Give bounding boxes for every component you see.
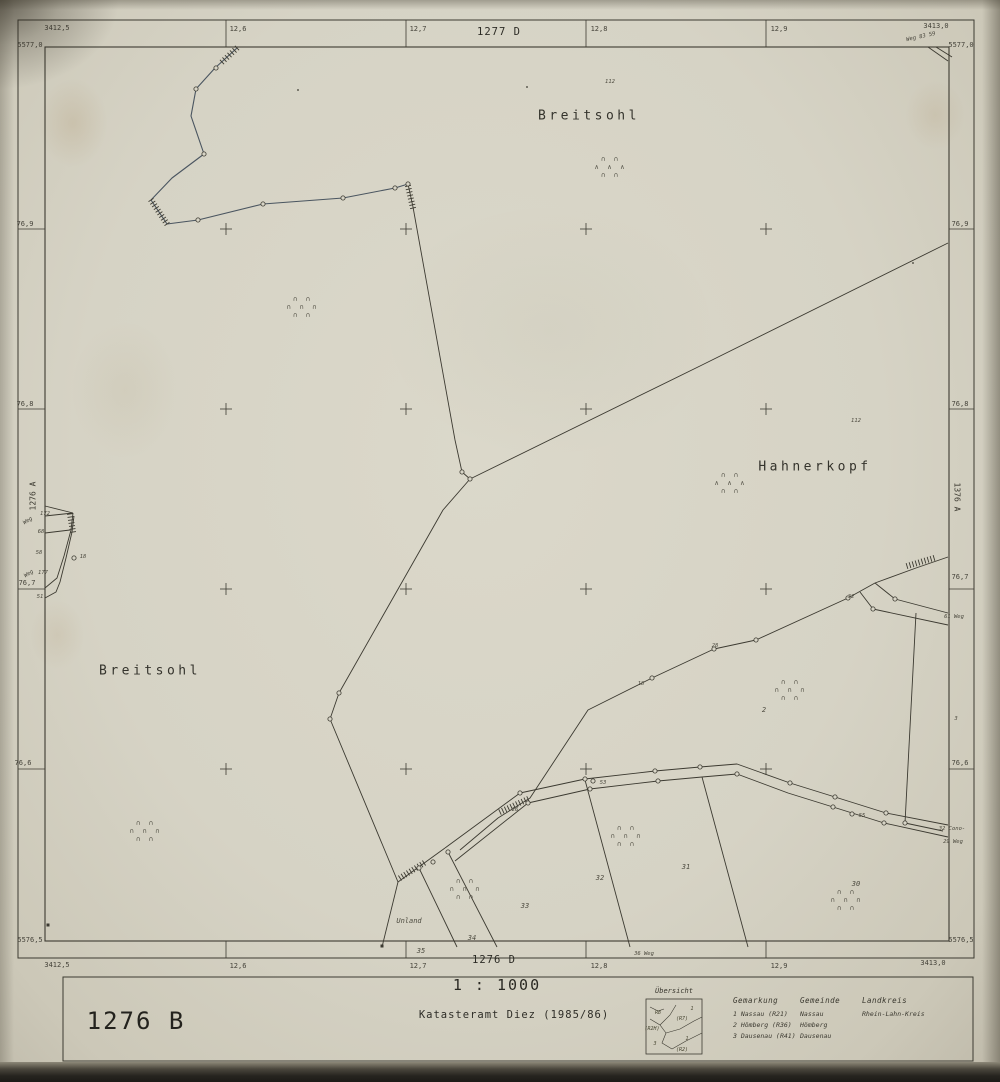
overview-label: (R2)	[676, 1047, 688, 1053]
embankment-hatch	[921, 559, 923, 565]
parcel-34: 34	[468, 934, 476, 942]
overview-label: R8	[655, 1010, 661, 1016]
parcel-boundary-line	[382, 882, 398, 947]
parcel-boundary-line	[460, 557, 948, 850]
parcel-68: 68	[38, 529, 45, 535]
grid-label-top-2: 12,6	[230, 25, 247, 33]
survey-point	[196, 218, 200, 222]
survey-point	[518, 791, 522, 795]
map-speck	[912, 262, 914, 264]
parcel-112-north: 112	[605, 79, 615, 85]
parcel-boundary-line	[470, 243, 948, 479]
legend-column-header: Gemeinde	[800, 996, 840, 1005]
survey-point	[591, 779, 595, 783]
survey-point	[653, 769, 657, 773]
survey-point	[882, 821, 886, 825]
embankment-hatch	[504, 807, 507, 812]
embankment-hatch	[507, 805, 510, 810]
tree-cluster-east: ∩ ∩∩ ∩ ∩∩ ∩	[774, 678, 807, 702]
embankment-hatch	[149, 198, 154, 201]
parcel-32: 32	[596, 874, 604, 882]
tree-cluster-sw: ∩ ∩∩ ∩ ∩∩ ∩	[129, 819, 162, 843]
survey-point	[656, 779, 660, 783]
survey-point	[884, 811, 888, 815]
survey-point	[261, 202, 265, 206]
embankment-hatch	[906, 563, 908, 569]
grid-label-top-6: 3413,0	[923, 22, 948, 30]
grid-label-bottom-3: 12,7	[410, 962, 427, 970]
overview-label: (R7)	[676, 1016, 688, 1022]
neighbor-sheet-bottom: 1276 D	[472, 954, 516, 966]
overview-title: Übersicht	[655, 987, 693, 995]
weg-36-label: 36 Weg	[634, 951, 654, 957]
label-32-cono: 32 Cono-	[939, 826, 966, 832]
legend-column-header: Gemarkung	[733, 996, 796, 1005]
survey-point	[903, 821, 907, 825]
parcel-boundary-line	[408, 184, 470, 479]
scanned-cadastral-map-sheet: 3412,512,612,712,812,93413,0Weg 83 59557…	[0, 0, 1000, 1082]
overview-label: (R2H)	[644, 1026, 659, 1032]
grid-label-left-1: 76,9	[17, 220, 34, 228]
grid-label-bottom-5: 12,9	[771, 962, 788, 970]
grid-label-right-2: 76,8	[952, 400, 969, 408]
survey-point	[468, 477, 472, 481]
embankment-hatch	[915, 560, 917, 566]
neighbor-sheet-left: 1276 A	[29, 482, 38, 511]
stream-boundary-line	[167, 184, 408, 224]
survey-point	[788, 781, 792, 785]
parcel-boundary-line	[905, 613, 943, 831]
embankment-hatch	[157, 212, 162, 215]
survey-point	[328, 717, 332, 721]
grid-label-corner-tr: 5577,0	[948, 41, 973, 49]
parcel-boundary-line	[330, 479, 470, 882]
parcel-boundary-line	[445, 764, 948, 848]
survey-point	[893, 597, 897, 601]
embankment-hatch	[154, 206, 159, 209]
survey-point	[754, 638, 758, 642]
tree-cluster-nw: ∩ ∩∩ ∩ ∩∩ ∩	[286, 295, 319, 319]
legend-col-gemarkung: Gemarkung1 Nassau (R21)2 Hömberg (R36)3 …	[733, 996, 796, 1042]
survey-point	[393, 186, 397, 190]
grid-label-right-4: 76,6	[952, 759, 969, 767]
legend-row: 1 Nassau (R21)	[733, 1009, 796, 1020]
grid-label-corner-bl: 5576,5	[17, 936, 42, 944]
survey-point	[698, 765, 702, 769]
embankment-hatch	[422, 860, 425, 865]
embankment-hatch	[927, 557, 929, 563]
map-canvas	[0, 0, 1000, 1082]
point-18: 18	[80, 554, 87, 560]
map-speck	[526, 86, 528, 88]
parcel-172: 172	[40, 511, 50, 517]
parcel-35: 35	[417, 947, 425, 955]
survey-point	[871, 607, 875, 611]
parcel-51: 51	[37, 594, 44, 600]
parcel-177: 177	[38, 570, 48, 576]
overview-label: 1	[685, 1036, 688, 1042]
grid-label-left-3: 76,7	[19, 579, 36, 587]
survey-point	[337, 691, 341, 695]
point-32: 32	[848, 594, 855, 600]
survey-point	[194, 87, 198, 91]
weg-29-label: 29 Weg	[943, 839, 963, 845]
embankment-hatch	[930, 556, 932, 562]
embankment-hatch	[163, 220, 168, 223]
point-53: 53	[600, 780, 607, 786]
survey-point	[202, 152, 206, 156]
map-scale: 1 : 1000	[453, 976, 541, 994]
tree-cluster-se: ∩ ∩∩ ∩ ∩∩ ∩	[830, 888, 863, 912]
grid-label-bottom-6: 3413,0	[920, 959, 945, 967]
legend-column-header: Landkreis	[862, 996, 925, 1005]
embankment-hatch	[69, 526, 75, 527]
parcel-33: 33	[521, 902, 529, 910]
parcel-30: 30	[852, 880, 860, 888]
survey-point	[460, 470, 464, 474]
embankment-hatch	[918, 560, 920, 566]
neighbor-sheet-right: 1376 A	[953, 483, 962, 512]
embankment-hatch	[161, 217, 166, 220]
overview-label: 1	[690, 1006, 693, 1012]
grid-label-left-2: 76,8	[17, 400, 34, 408]
parcel-boundary-line	[928, 47, 948, 61]
parcel-boundary-line	[585, 780, 630, 947]
parcel-26: 26	[512, 807, 519, 813]
grid-label-bottom-2: 12,6	[230, 962, 247, 970]
legend-row: Nassau	[800, 1009, 840, 1020]
sheet-number: 1276 B	[87, 1007, 186, 1035]
overview-sketch-line	[660, 1005, 676, 1025]
survey-point	[583, 777, 587, 781]
embankment-hatch	[156, 209, 161, 212]
grid-label-top-4: 12,8	[591, 25, 608, 33]
survey-point	[446, 850, 450, 854]
survey-point	[850, 812, 854, 816]
authority-label: Katasteramt Diez (1985/86)	[419, 1009, 609, 1021]
tree-cluster-s2: ∩ ∩∩ ∩ ∩∩ ∩	[449, 877, 482, 901]
parcel-18: 18	[638, 681, 645, 687]
legend-row: 2 Hömberg (R36)	[733, 1020, 796, 1031]
map-speck	[297, 89, 299, 91]
survey-point	[831, 805, 835, 809]
place-breitsohl-north: Breitsohl	[538, 109, 640, 124]
place-hahnerkopf: Hahnerkopf	[758, 460, 871, 475]
point-55: 55	[859, 813, 866, 819]
parcel-boundary-line	[875, 583, 948, 613]
survey-point	[417, 866, 421, 870]
parcel-112-east: 112	[851, 418, 861, 424]
parcel-boundary-line	[702, 777, 748, 947]
grid-label-top-5: 12,9	[771, 25, 788, 33]
legend-row: 3 Dausenau (R41)	[733, 1031, 796, 1042]
tree-cluster-hahnerkopf: ∩ ∩∧ ∧ ∧∩ ∩	[714, 471, 747, 495]
parcel-28: 28	[712, 643, 719, 649]
grid-label-top-1: 3412,5	[44, 24, 69, 32]
embankment-hatch	[69, 523, 75, 524]
embankment-hatch	[159, 214, 164, 217]
neighbor-sheet-top: 1277 D	[477, 26, 521, 38]
grid-label-right-1: 76,9	[952, 220, 969, 228]
legend-row: Dausenau	[800, 1031, 840, 1042]
boundary-stone-mark	[47, 924, 50, 927]
parcel-58: 58	[36, 550, 43, 556]
embankment-hatch	[398, 875, 401, 880]
survey-point	[341, 196, 345, 200]
grid-label-top-3: 12,7	[410, 25, 427, 33]
place-breitsohl-west: Breitsohl	[99, 664, 201, 679]
parcel-boundary-line	[45, 513, 73, 588]
grid-label-corner-tl: 5577,0	[17, 41, 42, 49]
parcel-boundary-line	[45, 516, 74, 598]
embankment-hatch	[933, 555, 935, 561]
parcel-2: 2	[762, 706, 766, 714]
embankment-hatch	[924, 558, 926, 564]
survey-point	[833, 795, 837, 799]
parcel-3: 3	[954, 716, 957, 722]
embankment-hatch	[150, 201, 155, 204]
survey-point	[72, 556, 76, 560]
survey-point	[735, 772, 739, 776]
grid-label-bottom-1: 3412,5	[44, 961, 69, 969]
grid-label-right-3: 76,7	[952, 573, 969, 581]
grid-label-left-4: 76,6	[15, 759, 32, 767]
embankment-hatch	[499, 809, 502, 814]
embankment-hatch	[502, 808, 505, 813]
legend-row: Hömberg	[800, 1020, 840, 1031]
survey-point	[431, 860, 435, 864]
legend-col-gemeinde: GemeindeNassauHömbergDausenau	[800, 996, 840, 1042]
survey-point	[588, 787, 592, 791]
boundary-stone-mark	[381, 945, 384, 948]
survey-point	[214, 66, 218, 70]
embankment-hatch	[152, 204, 157, 207]
map-inner-frame	[45, 47, 949, 941]
grid-label-corner-br: 5576,5	[948, 936, 973, 944]
overview-label: 3	[653, 1041, 656, 1047]
survey-point	[406, 182, 410, 186]
legend-col-landkreis: LandkreisRhein-Lahn-Kreis	[862, 996, 925, 1020]
survey-point	[526, 801, 530, 805]
survey-point	[650, 676, 654, 680]
sheet-outer-frame	[18, 20, 974, 958]
weg-61-label: 61 Weg	[944, 614, 964, 620]
label-unland: Unland	[396, 917, 421, 925]
parcel-31: 31	[682, 863, 690, 871]
grid-label-bottom-4: 12,8	[591, 962, 608, 970]
parcel-boundary-line	[455, 774, 948, 861]
parcel-boundary-line	[45, 530, 70, 533]
embankment-hatch	[912, 561, 914, 567]
tree-cluster-breitsohl: ∩ ∩∧ ∧ ∧∩ ∩	[594, 155, 627, 179]
tree-cluster-s1: ∩ ∩∩ ∩ ∩∩ ∩	[610, 824, 643, 848]
stream-boundary-line	[151, 48, 237, 224]
embankment-hatch	[909, 562, 911, 568]
legend-row: Rhein-Lahn-Kreis	[862, 1009, 925, 1020]
embankment-hatch	[70, 529, 76, 530]
